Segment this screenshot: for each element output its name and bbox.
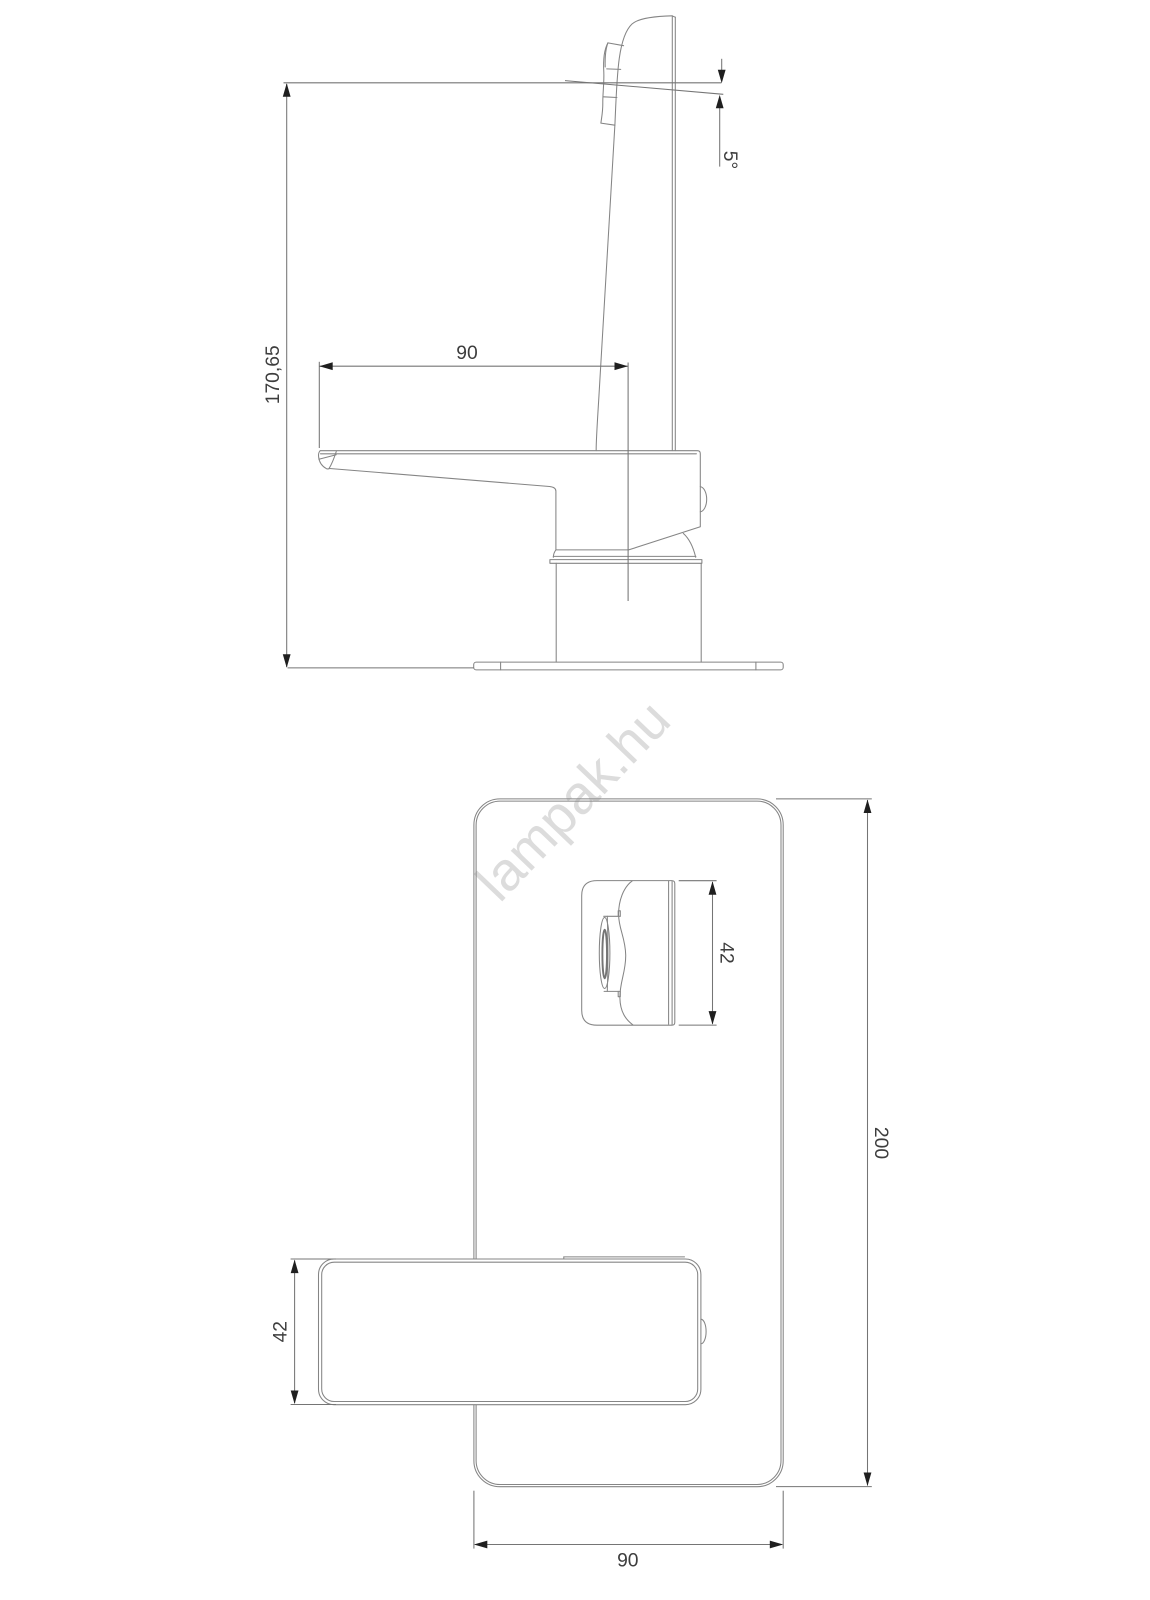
svg-text:90: 90 xyxy=(456,343,477,364)
svg-text:5°: 5° xyxy=(719,151,740,169)
svg-text:42: 42 xyxy=(271,1321,292,1342)
svg-text:42: 42 xyxy=(716,942,737,963)
svg-text:170,65: 170,65 xyxy=(263,345,284,404)
svg-text:90: 90 xyxy=(617,1550,638,1571)
svg-text:200: 200 xyxy=(870,1127,891,1159)
